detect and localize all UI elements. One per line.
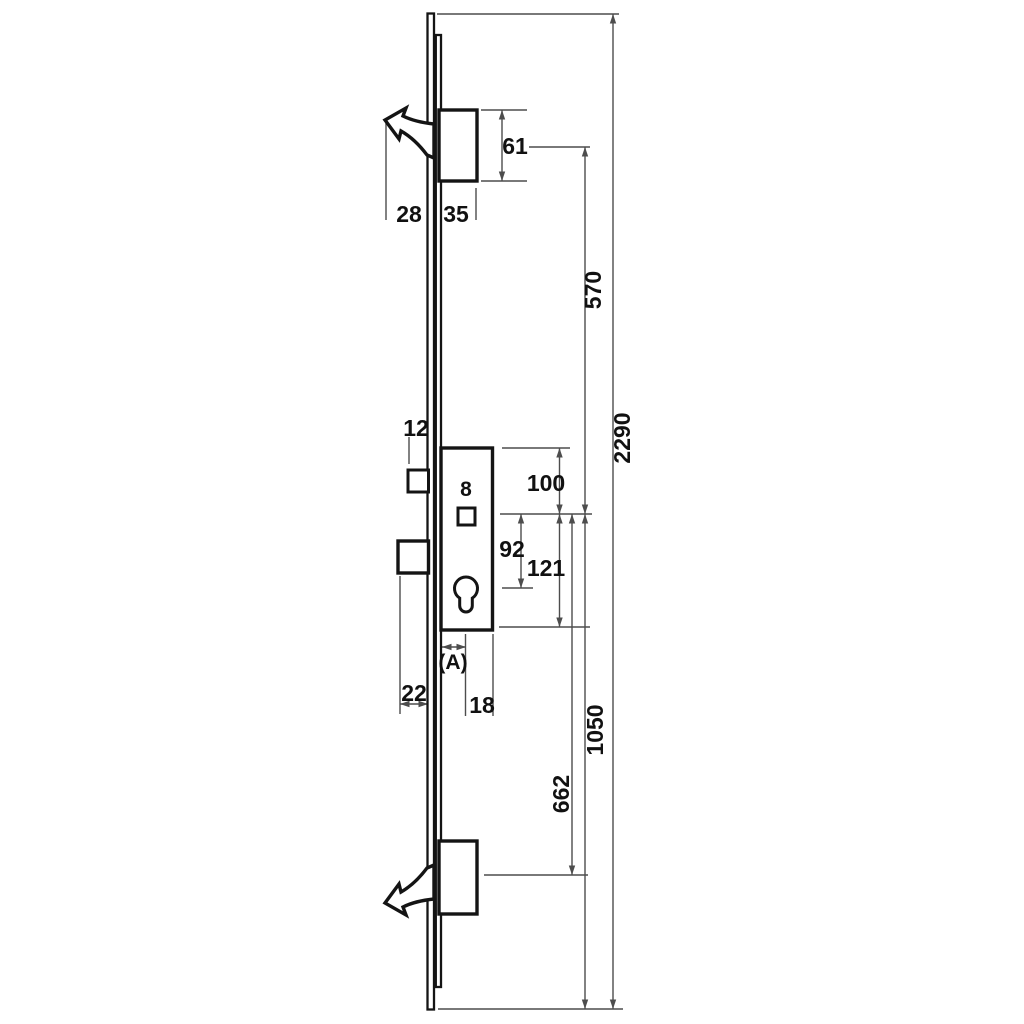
bottom-bolt-case xyxy=(439,841,477,914)
arrowhead xyxy=(582,505,588,515)
arrowhead xyxy=(582,514,588,524)
label-12: 12 xyxy=(403,415,429,441)
label-121: 121 xyxy=(527,555,566,581)
latch-bolt xyxy=(408,470,429,492)
arrowhead xyxy=(556,514,562,524)
label-662: 662 xyxy=(548,775,574,813)
arrowhead xyxy=(518,514,524,524)
lock-dimension-diagram: 61 28 35 570 2290 12 8 100 92 121 (A) 22… xyxy=(0,0,1024,1024)
label-28: 28 xyxy=(396,201,422,227)
label-22: 22 xyxy=(401,680,427,706)
arrowhead xyxy=(518,579,524,589)
label-92: 92 xyxy=(499,536,525,562)
arrowhead xyxy=(499,172,505,182)
arrowhead xyxy=(556,618,562,628)
arrowhead xyxy=(499,110,505,120)
arrowhead xyxy=(556,505,562,515)
label-8: 8 xyxy=(460,478,472,501)
deadbolt xyxy=(398,541,429,573)
label-570: 570 xyxy=(580,271,606,309)
lock-parts xyxy=(385,14,493,1010)
technical-drawing-canvas: 61 28 35 570 2290 12 8 100 92 121 (A) 22… xyxy=(0,0,1024,1024)
arrowhead xyxy=(610,14,616,24)
extension-lines xyxy=(386,14,623,1009)
arrowhead xyxy=(610,1000,616,1010)
label-61: 61 xyxy=(502,133,528,159)
label-backset-A: (A) xyxy=(438,651,467,674)
arrowhead xyxy=(556,448,562,458)
arrowhead xyxy=(569,514,575,524)
label-18: 18 xyxy=(469,692,495,718)
arrowhead xyxy=(569,866,575,876)
label-2290: 2290 xyxy=(609,412,635,463)
follower-square xyxy=(458,508,475,525)
faceplate-outer-strip xyxy=(428,14,435,1010)
label-100: 100 xyxy=(527,470,565,496)
top-bolt-case xyxy=(439,110,477,181)
arrowhead xyxy=(582,147,588,157)
arrowhead xyxy=(457,644,467,650)
label-1050: 1050 xyxy=(582,704,608,755)
label-35: 35 xyxy=(443,201,469,227)
arrowhead xyxy=(442,644,452,650)
arrowhead xyxy=(582,1000,588,1010)
